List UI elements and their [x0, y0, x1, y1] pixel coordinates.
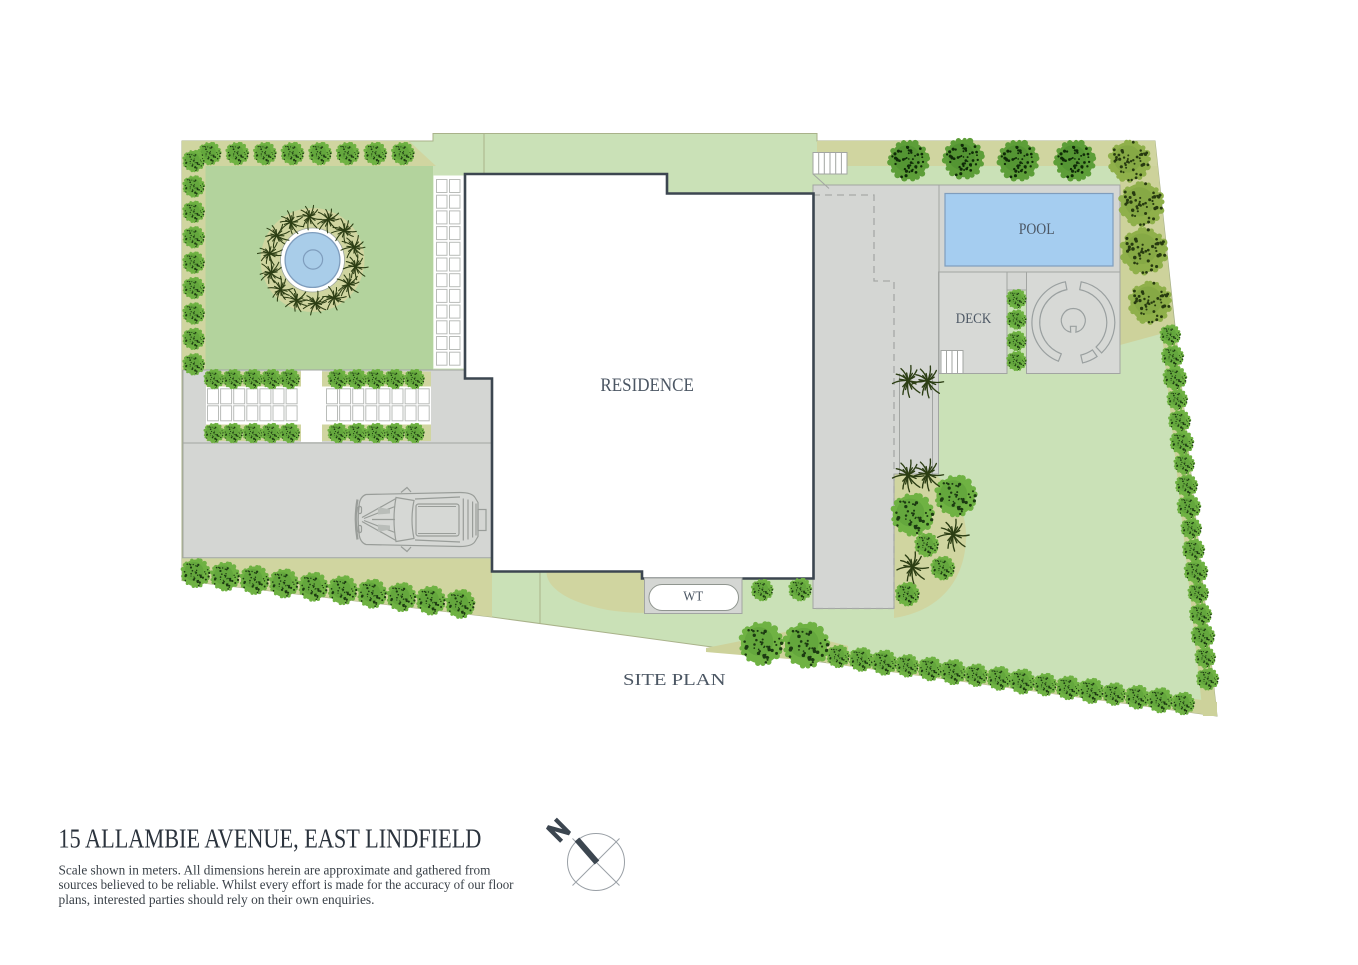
svg-text:plans, interested parties shou: plans, interested parties should rely on… [59, 892, 375, 907]
svg-text:DECK: DECK [956, 311, 992, 327]
svg-text:RESIDENCE: RESIDENCE [600, 376, 694, 396]
svg-text:WT: WT [683, 588, 703, 603]
svg-text:POOL: POOL [1019, 221, 1055, 238]
svg-text:SITE PLAN: SITE PLAN [623, 670, 726, 689]
svg-text:15 ALLAMBIE AVENUE, EAST LINDF: 15 ALLAMBIE AVENUE, EAST LINDFIELD [58, 824, 481, 854]
svg-text:sources believed to be reliabl: sources believed to be reliable. Whilst … [59, 877, 514, 892]
svg-text:Scale shown in meters. All dim: Scale shown in meters. All dimensions he… [59, 862, 491, 877]
